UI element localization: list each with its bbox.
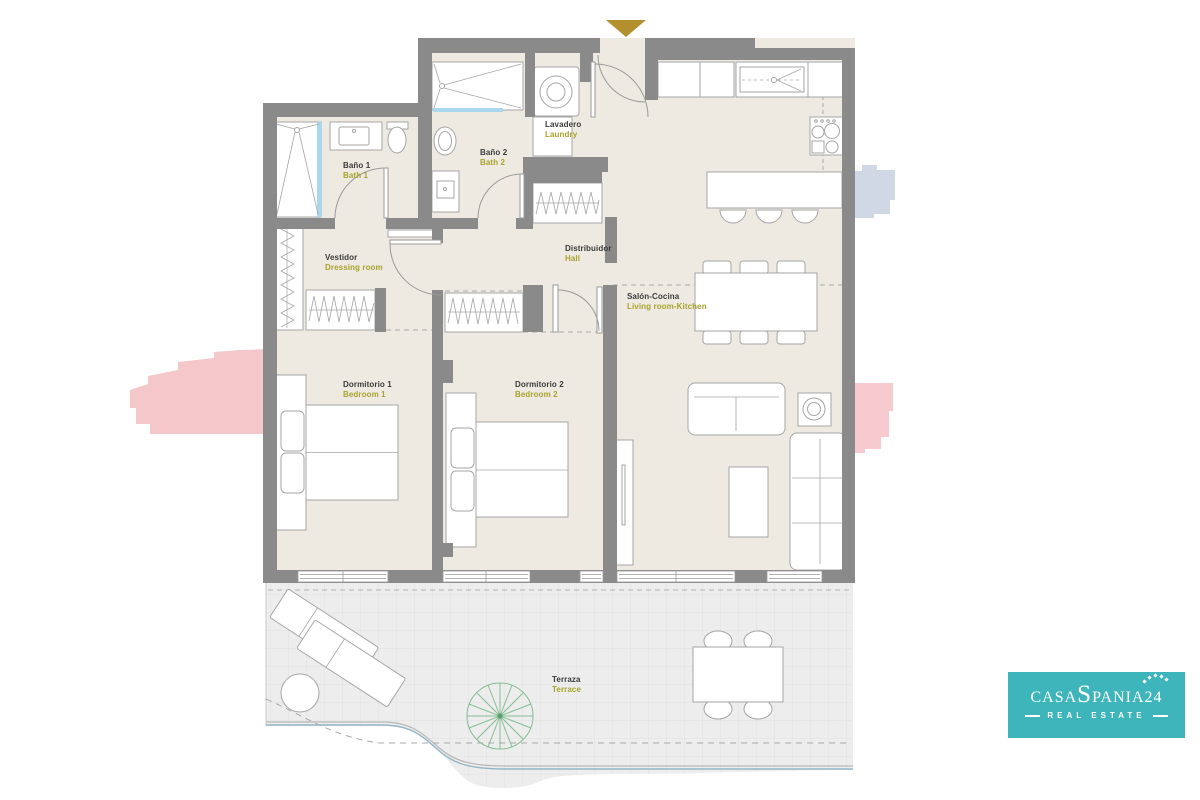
room-label-living: Salón-Cocina Living room-Kitchen [627, 292, 707, 312]
room-label-laundry: Lavadero Laundry [545, 120, 581, 140]
star-icon [1159, 674, 1163, 678]
window [767, 571, 822, 582]
room-name-en: Terrace [552, 685, 581, 695]
brand-part-24: 24 [1145, 687, 1163, 709]
room-name-en: Living room-Kitchen [627, 302, 707, 312]
coffee-table [729, 467, 768, 537]
room-label-dressing: Vestidor Dressing room [325, 253, 383, 273]
bed2-pillow [451, 471, 474, 511]
dining-set [695, 261, 817, 344]
brand-part-pania: PANIA [1092, 689, 1144, 706]
dining-chair [703, 261, 731, 274]
dining-chair [777, 331, 805, 344]
floorplan-page: Baño 1 Bath 1 Baño 2 Bath 2 Lavadero Lau… [0, 0, 1200, 800]
blue-blob-right [848, 165, 895, 218]
room-name-es: Baño 2 [480, 148, 507, 158]
room-name-en: Bedroom 2 [515, 390, 564, 400]
room-label-hall: Distribuidor Hall [565, 244, 612, 264]
bedroom1-wardrobe [306, 290, 375, 330]
window [580, 571, 603, 582]
terrace-side-table [281, 674, 319, 712]
room-name-en: Laundry [545, 130, 581, 140]
kitchen-island [707, 172, 842, 208]
room-name-en: Bath 2 [480, 158, 507, 168]
brand-number: 24 [1145, 689, 1163, 706]
brand-logo: CASASPANIA24 REAL ESTATE [1008, 672, 1185, 738]
window [617, 571, 735, 582]
room-name-en: Hall [565, 254, 612, 264]
star-icon [1164, 677, 1168, 681]
room-name-es: Dormitorio 1 [343, 380, 392, 390]
entrance-arrow-icon [605, 20, 647, 38]
room-label-bedroom1: Dormitorio 1 Bedroom 1 [343, 380, 392, 400]
terrace-table [693, 647, 783, 702]
brand-tagline-row: REAL ESTATE [1008, 711, 1185, 720]
room-label-bedroom2: Dormitorio 2 Bedroom 2 [515, 380, 564, 400]
laundry-furniture [533, 67, 579, 156]
room-name-en: Bath 1 [343, 171, 370, 181]
pink-blob-right [853, 383, 893, 453]
room-name-es: Salón-Cocina [627, 292, 707, 302]
brand-part-s: S [1077, 681, 1092, 708]
bedroom2-wardrobe [445, 293, 523, 332]
bed2-pillow [451, 428, 474, 468]
room-name-es: Dormitorio 2 [515, 380, 564, 390]
bath-screen [433, 108, 503, 112]
room-name-es: Distribuidor [565, 244, 612, 254]
room-name-es: Baño 1 [343, 161, 370, 171]
star-icon [1147, 675, 1151, 679]
sofa [688, 383, 785, 435]
window [298, 571, 388, 582]
room-label-bath1: Baño 1 Bath 1 [343, 161, 370, 181]
entrance-arrow-shape [606, 20, 646, 37]
dining-chair [703, 331, 731, 344]
tagline-rule-left [1025, 715, 1040, 717]
shower-drain [295, 128, 300, 133]
toilet-bowl [388, 127, 406, 153]
room-label-terrace: Terraza Terrace [552, 675, 581, 695]
tagline-rule-right [1153, 715, 1168, 717]
hall-closet [533, 183, 602, 223]
room-name-en: Dressing room [325, 263, 383, 273]
brand-part-casa: CASA [1030, 689, 1077, 706]
bathtub [432, 62, 523, 110]
brand-tagline: REAL ESTATE [1047, 711, 1145, 720]
room-name-es: Vestidor [325, 253, 383, 263]
plant-icon [467, 683, 533, 749]
dining-table [695, 273, 817, 331]
brand-wordmark: CASASPANIA24 [1008, 684, 1185, 709]
star-icon [1142, 679, 1146, 683]
chaise-sofa [790, 433, 846, 570]
bed1-pillow [281, 411, 304, 451]
dining-chair [777, 261, 805, 274]
window [443, 571, 530, 582]
bed1-pillow [281, 453, 304, 493]
shower-screen [317, 122, 322, 217]
room-name-en: Bedroom 1 [343, 390, 392, 400]
dining-chair [740, 261, 768, 274]
bed2-headboard [446, 393, 476, 547]
room-label-bath2: Baño 2 Bath 2 [480, 148, 507, 168]
star-icon [1153, 673, 1157, 677]
room-name-es: Lavadero [545, 120, 581, 130]
pink-blob-left [130, 349, 268, 434]
dining-chair [740, 331, 768, 344]
room-name-es: Terraza [552, 675, 581, 685]
